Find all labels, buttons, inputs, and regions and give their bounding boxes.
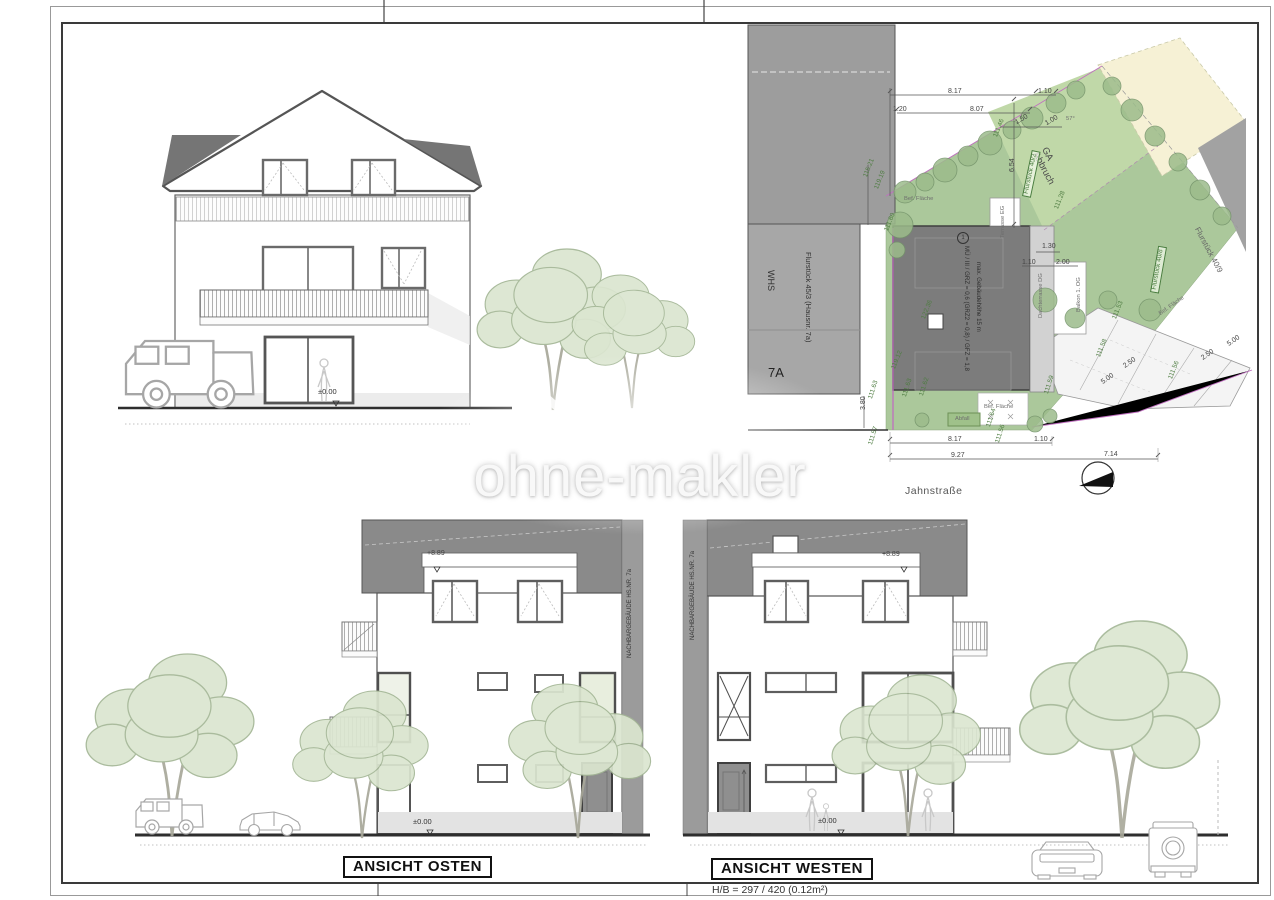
architectural-plan-sheet: ±0.00 +8.89 ±0.00 NACHBARGEBÄUDE HS.NR. … bbox=[0, 0, 1274, 900]
new-building-regulations-line1: MÜ / III / GRZ = 0,6 (GRZ2 = 0,8) / GFZ … bbox=[963, 246, 970, 371]
plan-graphics bbox=[0, 0, 1274, 900]
new-building-index-badge: 1 bbox=[957, 232, 969, 244]
annotation-label: Balkon 1. OG bbox=[1076, 277, 1082, 312]
dimension-label: 8.17 bbox=[948, 436, 962, 443]
dimension-label: 8.07 bbox=[970, 106, 984, 113]
level-zero-label: ±0.00 bbox=[318, 388, 337, 396]
street-label: Jahnstraße bbox=[905, 486, 963, 497]
west-zero-label: ±0.00 bbox=[818, 817, 837, 825]
label-ansicht-westen: ANSICHT WESTEN bbox=[711, 858, 873, 880]
annotation-label: Terrasse EG bbox=[1000, 206, 1006, 238]
dimension-label: 9.27 bbox=[951, 452, 965, 459]
dimension-label: 1.20 bbox=[893, 106, 907, 113]
sheet-format-note: H/B = 297 / 420 (0.12m²) bbox=[712, 885, 828, 896]
dimension-label: 2.00 bbox=[1056, 259, 1070, 266]
dimension-label: 1.10 bbox=[1022, 259, 1036, 266]
dimension-label: 3.80 bbox=[860, 396, 867, 410]
dimension-label: 7.14 bbox=[1104, 451, 1118, 458]
house-number-7a-label: 7A bbox=[768, 366, 784, 380]
annotation-label: Abfall bbox=[955, 416, 970, 422]
dimension-label: 1.30 bbox=[1042, 243, 1056, 250]
parcel-45-3-label: Flurstück 45/3 (Hausnr. 7a) bbox=[804, 252, 812, 342]
dimension-label: 8.17 bbox=[948, 88, 962, 95]
whs-label: WHS bbox=[766, 270, 775, 291]
annotation-label: Bef. Fläche bbox=[904, 196, 933, 202]
annotation-label: Bef. Fläche bbox=[984, 404, 1013, 410]
annotation-label: Dachterrasse DG bbox=[1038, 273, 1044, 318]
west-ridge-height-label: +8.89 bbox=[882, 551, 900, 558]
east-zero-label: ±0.00 bbox=[413, 818, 432, 826]
dimension-label: 1.10 bbox=[1034, 436, 1048, 443]
new-building-regulations-line2: max. Gebäudehöhe 15 m bbox=[975, 262, 982, 332]
label-ansicht-osten: ANSICHT OSTEN bbox=[343, 856, 492, 878]
east-ridge-height-label: +8.89 bbox=[427, 550, 445, 557]
dimension-label: 1.10 bbox=[1038, 88, 1052, 95]
west-neighbor-label: NACHBARGEBÄUDE HS.NR. 7a bbox=[690, 551, 696, 640]
annotation-label: 57° bbox=[1066, 116, 1075, 122]
east-neighbor-label: NACHBARGEBÄUDE HS.NR. 7a bbox=[627, 569, 633, 658]
dimension-label: 6.54 bbox=[1009, 158, 1016, 172]
